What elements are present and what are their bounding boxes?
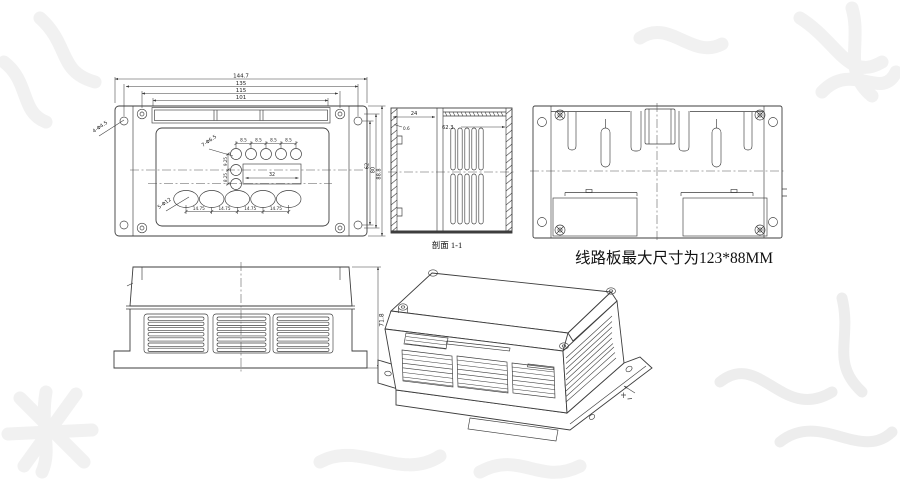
front-vent-group-1 (144, 314, 208, 353)
front-vent-group-3 (273, 314, 333, 353)
pcb-size-note: 线路板最大尺寸为123*88MM (575, 249, 773, 267)
front-vent-group-2 (213, 314, 270, 353)
pitch-small-2: 8.5 (255, 138, 262, 143)
pitch-small-4: 8.5 (285, 138, 292, 143)
rear-bottom-openings (553, 189, 787, 236)
pitch-large-4: 14.75 (270, 206, 282, 211)
pitch-large-2: 14.75 (219, 206, 231, 211)
dim-wall: 0.6 (403, 126, 410, 131)
hatch-lid (445, 112, 503, 116)
rear-top-tab (568, 109, 752, 151)
rear-pill-slots (601, 119, 721, 167)
label-corner-holes: 4-Φ4.5 (92, 120, 109, 135)
rear-inner-lines (551, 106, 764, 238)
wall-dim-leader (394, 125, 402, 128)
rear-screw-bosses (555, 110, 765, 235)
rear-corner-holes (538, 118, 778, 227)
pitch-large-3: 14.75 (244, 206, 256, 211)
dim-height-screws: 80 (370, 167, 376, 173)
top-view: 32 144.7 135 115 101 62 80 88.8 (92, 74, 386, 237)
hatch-left-wall (391, 109, 397, 232)
front-height-dimension: 71.8 (352, 267, 386, 368)
pitch-small-3: 8.5 (270, 138, 277, 143)
rear-outline (533, 106, 782, 238)
dim-width-screws: 115 (236, 88, 247, 94)
dim-width-slot: 101 (236, 95, 247, 101)
section-vent-slots (451, 128, 483, 224)
drawing-sheet: 32 144.7 135 115 101 62 80 88.8 (0, 0, 900, 500)
section-view: 24 0.6 62.3 剖面 1-1 (388, 108, 515, 250)
section-base-bar (391, 231, 512, 234)
engineering-drawing-canvas: 32 144.7 135 115 101 62 80 88.8 (0, 0, 900, 500)
section-caption: 剖面 1-1 (432, 240, 462, 250)
dim-width-outer: 144.7 (233, 74, 249, 80)
iso-view (378, 270, 652, 441)
front-lid-details (127, 267, 340, 286)
dim-width-holes: 135 (236, 81, 247, 87)
dim-height-outer: 88.8 (377, 168, 383, 179)
pitch-row1: 9.25 (223, 157, 228, 166)
pitch-large-1: 14.75 (193, 206, 205, 211)
wall-clips (397, 136, 402, 216)
dim-front-height: 71.8 (379, 313, 386, 327)
dim-vent: 62.3 (442, 125, 454, 131)
dim-window: 32 (269, 172, 275, 178)
dim-depth: 24 (411, 111, 418, 117)
hatch-right-wall (506, 109, 512, 232)
rear-view (530, 103, 787, 241)
pitch-small-1: 8.5 (240, 138, 247, 143)
front-view: 71.8 (114, 262, 386, 374)
pitch-row2: 8.25 (223, 173, 228, 182)
